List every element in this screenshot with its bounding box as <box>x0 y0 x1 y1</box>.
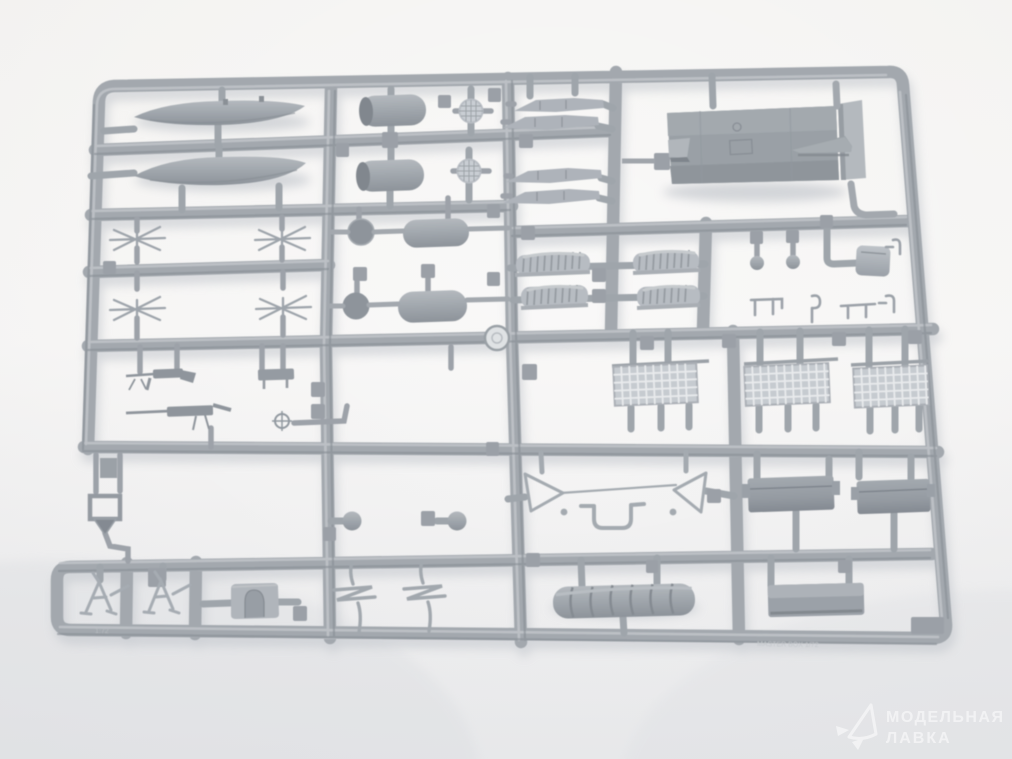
svg-text:1:72: 1:72 <box>95 628 109 635</box>
svg-text:MASTER BOX 1/72: MASTER BOX 1/72 <box>757 641 819 649</box>
svg-text:ЛАВКА: ЛАВКА <box>886 730 952 747</box>
svg-text:МОДЕЛЬНАЯ: МОДЕЛЬНАЯ <box>886 709 1004 726</box>
